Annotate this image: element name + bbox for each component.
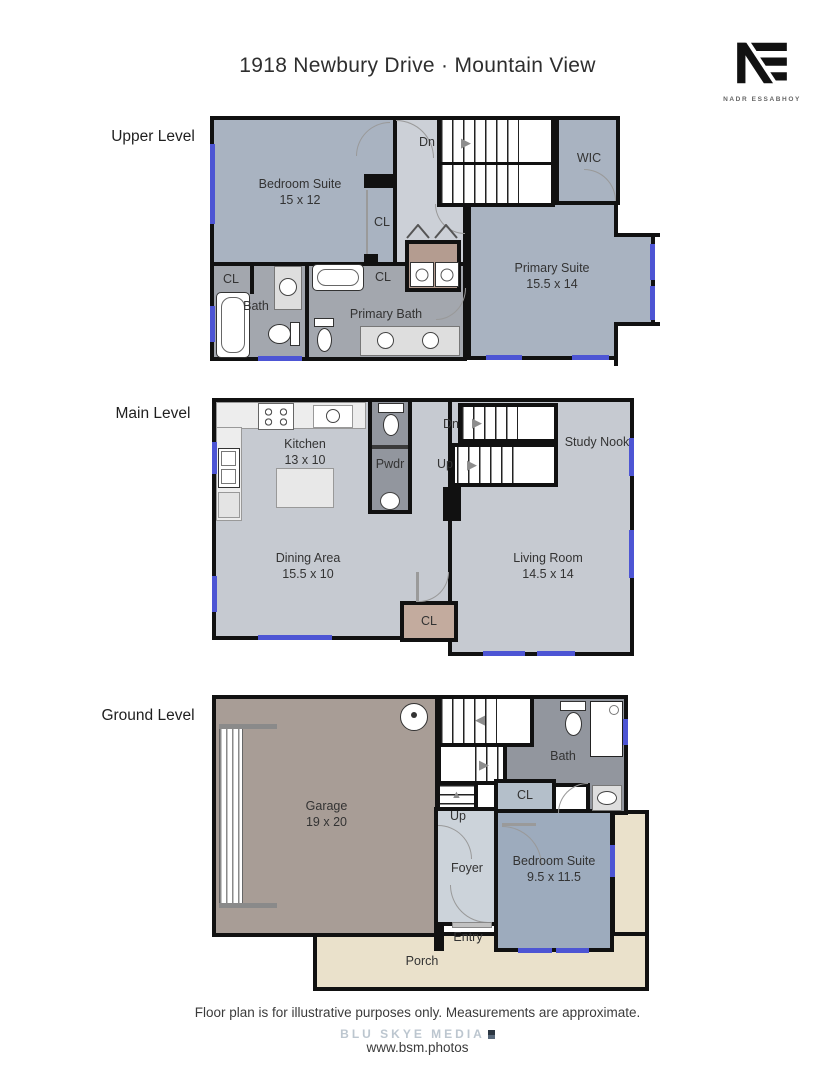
upper-level-label: Upper Level bbox=[98, 127, 208, 147]
upper-level-plan: ▶ bbox=[210, 116, 660, 378]
bifold-door-icon bbox=[434, 224, 458, 239]
ground-level-plan: ◀ ▶ ▲ Garage19 x 20 Up Bath bbox=[212, 695, 652, 995]
room-name: Living Room bbox=[513, 551, 582, 565]
room-name: Primary Suite bbox=[514, 261, 589, 275]
room-name: Garage bbox=[306, 799, 348, 813]
suite-bottom-right-cutout bbox=[614, 322, 660, 366]
room-name: Bedroom Suite bbox=[513, 854, 596, 868]
room-dims: 9.5 x 11.5 bbox=[527, 870, 581, 884]
pwdr-label: Pwdr bbox=[370, 456, 410, 472]
window bbox=[483, 651, 525, 656]
bath-label: Bath bbox=[538, 748, 588, 764]
floor-plan-page: 1918 Newbury Drive · Mountain View NADR … bbox=[0, 0, 835, 1080]
sink-icon bbox=[326, 409, 340, 423]
room-dims: 15.5 x 14 bbox=[526, 277, 577, 291]
garage-door-track bbox=[219, 903, 277, 908]
window bbox=[210, 306, 215, 342]
window bbox=[629, 530, 634, 578]
media-brand: BLU SKYE MEDIA bbox=[0, 1027, 835, 1041]
wall-stub bbox=[250, 262, 254, 294]
toilet-bowl-icon bbox=[268, 324, 291, 344]
window bbox=[650, 286, 655, 320]
toilet-bowl-icon bbox=[383, 414, 399, 436]
primary-tub-icon bbox=[312, 264, 364, 291]
stair-down-arrow-icon: ▶ bbox=[472, 416, 482, 429]
bedroom-suite-label: Bedroom Suite 9.5 x 11.5 bbox=[504, 853, 604, 885]
cl-label: CL bbox=[412, 613, 446, 629]
garage-door-icon bbox=[219, 728, 243, 904]
bath-label: Bath bbox=[234, 298, 278, 314]
porch-label: Porch bbox=[390, 953, 454, 969]
wall-stub bbox=[443, 487, 461, 521]
dn-label: Dn bbox=[436, 416, 466, 432]
sink-icon bbox=[597, 791, 617, 805]
ground-level-label: Ground Level bbox=[93, 706, 203, 726]
window bbox=[572, 355, 609, 360]
main-level-plan: ▶ ▶ Kitchen13 x 10 Pwdr Dn Up Study Nook… bbox=[212, 398, 636, 660]
room-name: Kitchen bbox=[284, 437, 326, 451]
pwdr-divider-wall bbox=[372, 445, 408, 449]
room-dims: 13 x 10 bbox=[284, 453, 325, 467]
window bbox=[623, 719, 628, 745]
main-level-label: Main Level bbox=[98, 404, 208, 424]
dishwasher-icon bbox=[218, 492, 240, 518]
upper-stairwell: ▶ bbox=[437, 116, 555, 207]
media-url: www.bsm.photos bbox=[0, 1040, 835, 1055]
stair-treads bbox=[457, 447, 514, 483]
entry-label: Entry bbox=[440, 929, 496, 945]
primary-bath-label: Primary Bath bbox=[336, 306, 436, 322]
cl-label: CL bbox=[508, 787, 542, 803]
room-dims: 19 x 20 bbox=[306, 815, 347, 829]
photographer-name: NADR ESSABHOY bbox=[707, 96, 817, 103]
toilet-bowl-icon bbox=[317, 328, 332, 352]
door-arc bbox=[558, 783, 588, 813]
dn-label: Dn bbox=[412, 134, 442, 150]
bedroom-suite-label: Bedroom Suite 15 x 12 bbox=[250, 176, 350, 208]
water-heater-icon bbox=[400, 703, 428, 731]
media-brand-name: BLU SKYE MEDIA bbox=[340, 1027, 485, 1041]
garage-door-track bbox=[219, 724, 277, 729]
entry-door-line bbox=[452, 922, 492, 928]
stair-rail bbox=[441, 162, 551, 165]
stair-down-arrow-icon: ▶ bbox=[461, 136, 471, 149]
stair-treads bbox=[462, 407, 518, 439]
wic-label: WIC bbox=[565, 150, 613, 166]
toilet-tank-icon bbox=[560, 701, 586, 711]
window bbox=[486, 355, 522, 360]
up-label: Up bbox=[442, 808, 474, 824]
foyer-label: Foyer bbox=[440, 860, 494, 876]
ground-stairs-up: ▲ bbox=[436, 781, 478, 811]
wall-stub bbox=[364, 254, 378, 266]
window bbox=[650, 244, 655, 280]
window bbox=[212, 576, 217, 612]
sink-icon bbox=[377, 332, 394, 349]
washer-icon bbox=[410, 262, 434, 287]
living-label: Living Room14.5 x 14 bbox=[490, 550, 606, 582]
bsm-logo-icon bbox=[488, 1030, 495, 1039]
toilet-bowl-icon bbox=[565, 712, 582, 736]
study-nook-label: Study Nook bbox=[564, 434, 630, 450]
up-label: Up bbox=[430, 456, 460, 472]
toilet-tank-icon bbox=[290, 322, 300, 346]
stair-up-arrow-icon: ▶ bbox=[467, 458, 477, 471]
window bbox=[212, 442, 217, 474]
kitchen-label: Kitchen13 x 10 bbox=[260, 436, 350, 468]
cl-label: CL bbox=[368, 214, 396, 230]
sink-bowl bbox=[221, 451, 236, 466]
double-sink-icon bbox=[218, 448, 240, 488]
window bbox=[556, 948, 589, 953]
stair-treads bbox=[441, 699, 497, 743]
ne-monogram-icon bbox=[733, 40, 791, 86]
window bbox=[610, 845, 615, 877]
room-name: Bedroom Suite bbox=[259, 177, 342, 191]
sink-icon bbox=[279, 278, 297, 296]
window bbox=[518, 948, 552, 953]
dining-label: Dining Area15.5 x 10 bbox=[248, 550, 368, 582]
toilet-tank-icon bbox=[314, 318, 334, 327]
window bbox=[537, 651, 575, 656]
toilet-tank-icon bbox=[378, 403, 404, 413]
closet-door-line bbox=[416, 572, 419, 602]
garage-label: Garage19 x 20 bbox=[274, 798, 379, 830]
primary-suite-label: Primary Suite 15.5 x 14 bbox=[492, 260, 612, 292]
window bbox=[258, 635, 332, 640]
dryer-icon bbox=[435, 262, 459, 287]
cl-label: CL bbox=[368, 269, 398, 285]
cl-label: CL bbox=[216, 271, 246, 287]
stair-left-arrow-icon: ◀ bbox=[475, 713, 485, 726]
room-dims: 14.5 x 14 bbox=[522, 567, 573, 581]
sink-icon bbox=[422, 332, 439, 349]
sink-bowl bbox=[221, 469, 236, 484]
main-stairs-up: ▶ bbox=[451, 443, 558, 487]
window bbox=[210, 144, 215, 224]
stair-up-arrow-icon: ▲ bbox=[451, 790, 462, 801]
suite-top-right-cutout bbox=[614, 197, 660, 237]
double-vanity bbox=[360, 326, 460, 356]
wall-stub bbox=[364, 174, 394, 188]
photographer-logo: NADR ESSABHOY bbox=[707, 40, 817, 103]
bedroom-door-line bbox=[502, 823, 536, 826]
window bbox=[258, 356, 302, 361]
ground-stairs-top: ◀ bbox=[437, 695, 534, 747]
room-dims: 15.5 x 10 bbox=[282, 567, 333, 581]
disclaimer-text: Floor plan is for illustrative purposes … bbox=[0, 1005, 835, 1020]
main-stairs-down: ▶ bbox=[458, 403, 558, 443]
kitchen-island bbox=[276, 468, 334, 508]
porch-side bbox=[611, 810, 649, 936]
bifold-door-icon bbox=[406, 224, 430, 239]
shower-icon bbox=[590, 701, 623, 757]
room-name: Dining Area bbox=[276, 551, 341, 565]
stove-icon bbox=[258, 403, 294, 430]
stair-right-arrow-icon: ▶ bbox=[479, 758, 489, 771]
sink-icon bbox=[380, 492, 400, 510]
room-dims: 15 x 12 bbox=[279, 193, 320, 207]
